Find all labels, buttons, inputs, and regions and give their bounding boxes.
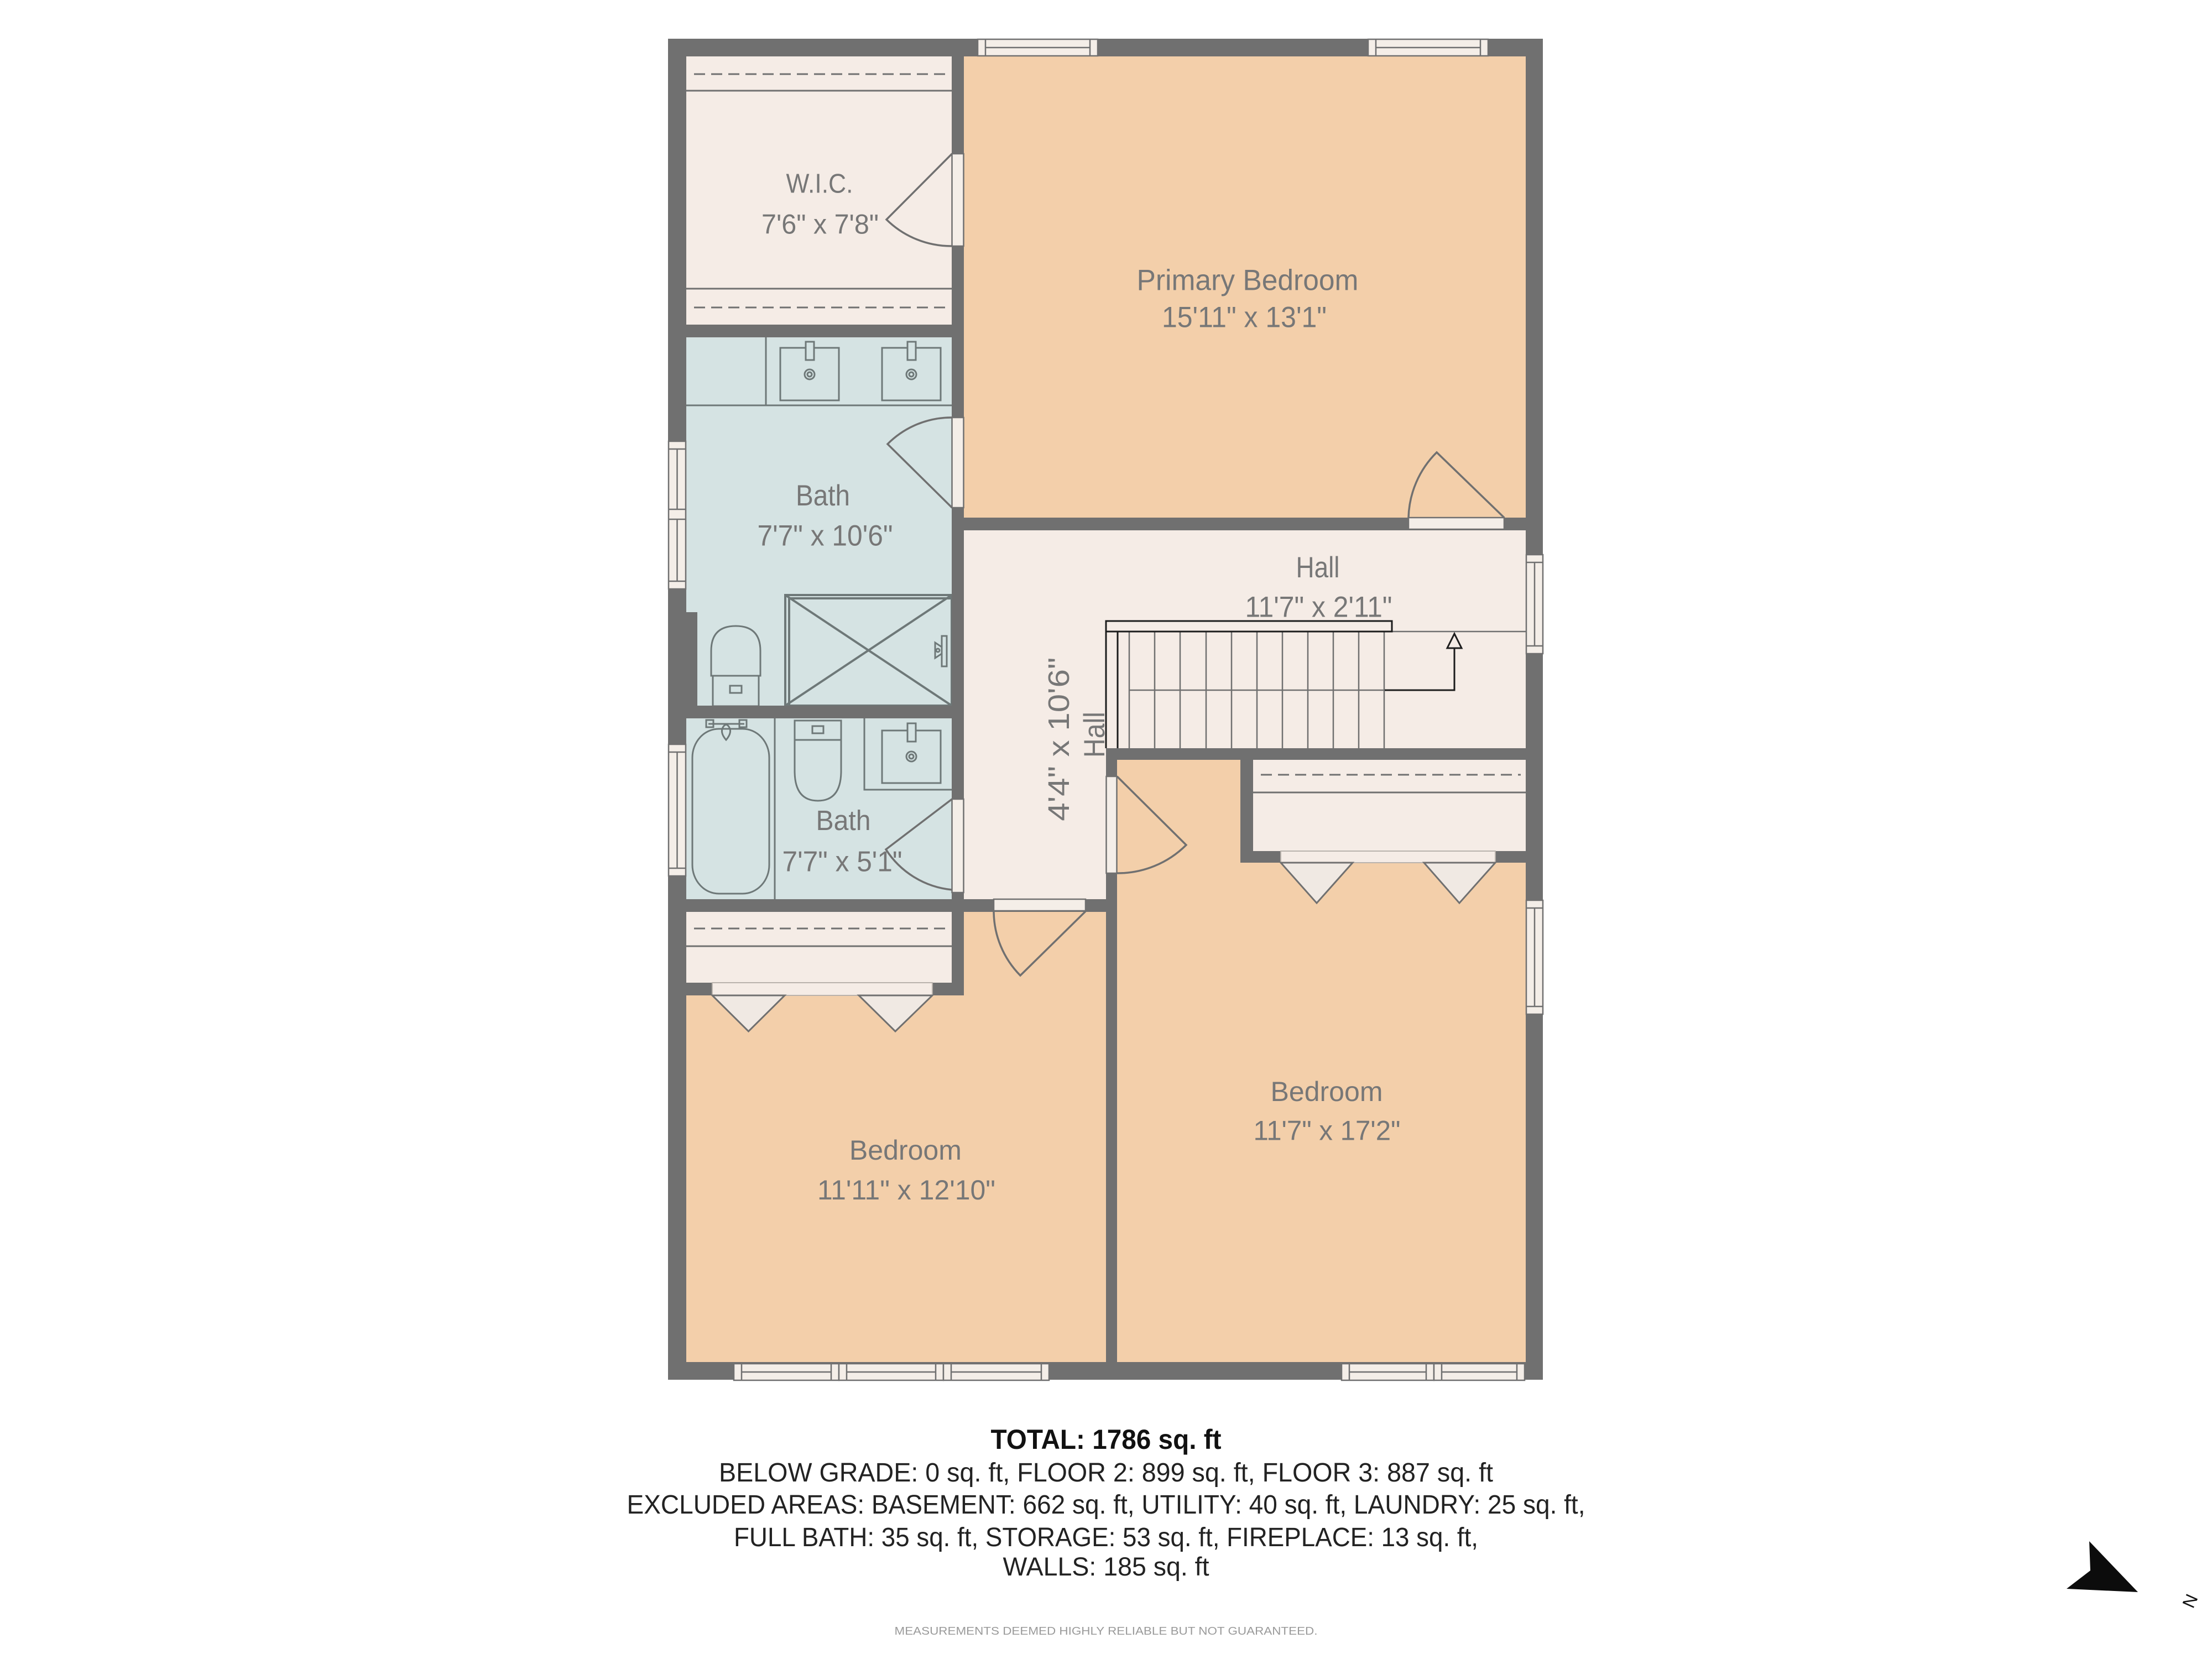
svg-text:EXCLUDED AREAS: BASEMENT: 662: EXCLUDED AREAS: BASEMENT: 662 sq. ft, UT… [627, 1490, 1585, 1520]
svg-text:FULL BATH: 35 sq. ft, STORAGE:: FULL BATH: 35 sq. ft, STORAGE: 53 sq. ft… [734, 1523, 1478, 1552]
svg-text:Bath: Bath [796, 479, 850, 512]
svg-text:7'6" x 7'8": 7'6" x 7'8" [761, 209, 879, 240]
svg-text:7'7" x 5'1": 7'7" x 5'1" [782, 846, 902, 878]
svg-text:W.I.C.: W.I.C. [786, 169, 853, 199]
svg-text:11'11" x 12'10": 11'11" x 12'10" [817, 1175, 995, 1206]
svg-text:Hall: Hall [1078, 712, 1111, 758]
svg-text:Primary Bedroom: Primary Bedroom [1137, 264, 1359, 297]
svg-text:WALLS: 185 sq. ft: WALLS: 185 sq. ft [1003, 1552, 1209, 1581]
svg-text:Bath: Bath [816, 805, 871, 836]
svg-text:4'4" x 10'6": 4'4" x 10'6" [1042, 658, 1076, 821]
svg-text:TOTAL: 1786 sq. ft: TOTAL: 1786 sq. ft [991, 1424, 1222, 1455]
svg-text:BELOW GRADE: 0 sq. ft, FLOOR 2: BELOW GRADE: 0 sq. ft, FLOOR 2: 899 sq. … [719, 1458, 1493, 1488]
svg-text:Bedroom: Bedroom [1271, 1076, 1383, 1107]
svg-text:Bedroom: Bedroom [849, 1135, 962, 1166]
svg-text:7'7" x 10'6": 7'7" x 10'6" [758, 519, 893, 552]
svg-text:15'11" x 13'1": 15'11" x 13'1" [1162, 301, 1327, 334]
svg-text:11'7" x 2'11": 11'7" x 2'11" [1245, 591, 1392, 624]
svg-text:MEASUREMENTS DEEMED HIGHLY REL: MEASUREMENTS DEEMED HIGHLY RELIABLE BUT … [895, 1625, 1318, 1637]
svg-text:11'7" x 17'2": 11'7" x 17'2" [1254, 1115, 1401, 1146]
svg-text:Hall: Hall [1296, 551, 1340, 584]
